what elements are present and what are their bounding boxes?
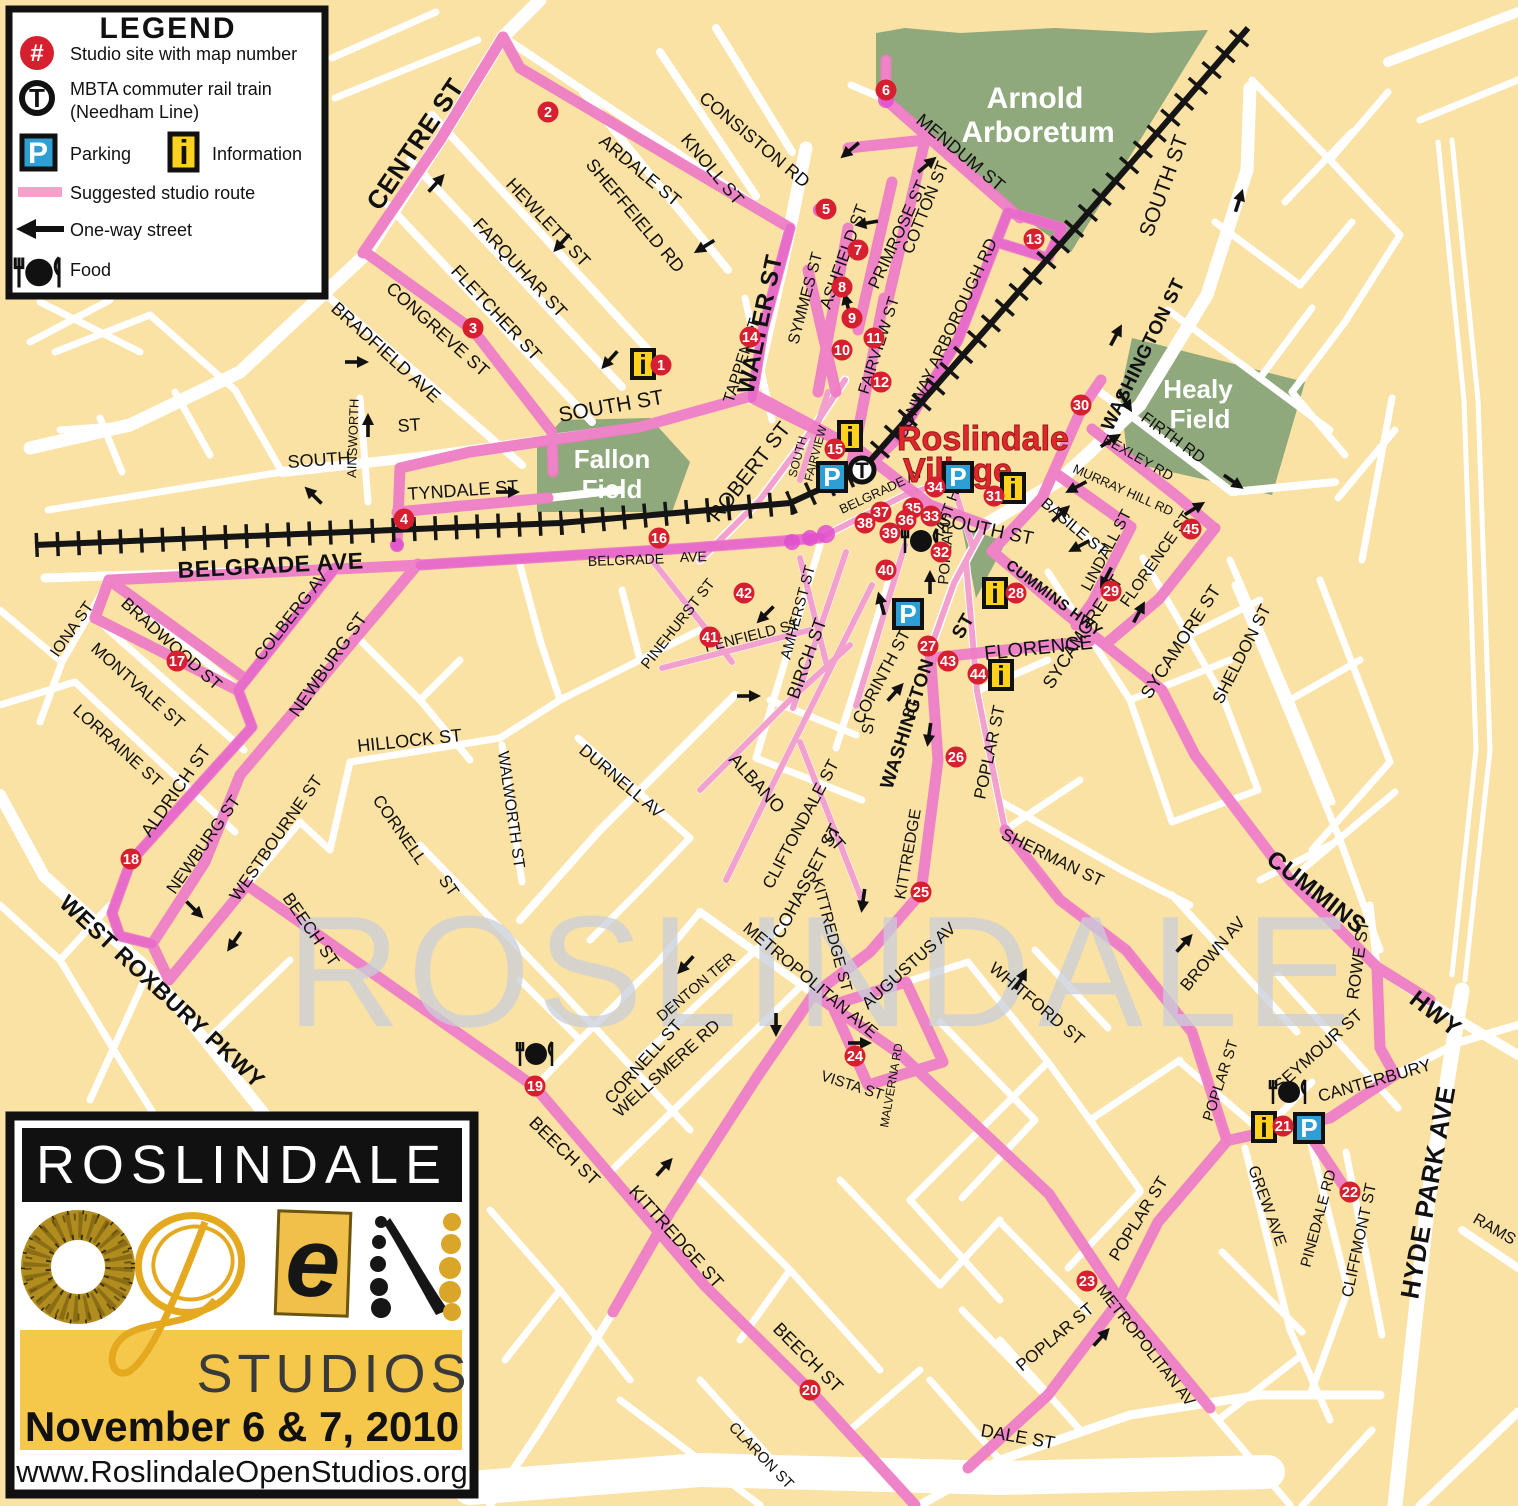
svg-text:33: 33 [923,509,939,525]
svg-text:Healy: Healy [1163,374,1233,404]
svg-text:10: 10 [834,343,850,359]
svg-text:BELGRADE: BELGRADE [588,550,665,569]
svg-text:21: 21 [1275,1119,1291,1135]
svg-text:28: 28 [1008,586,1024,602]
svg-text:www.RoslindaleOpenStudios.org: www.RoslindaleOpenStudios.org [15,1454,467,1489]
svg-text:41: 41 [702,630,718,646]
svg-text:Suggested studio route: Suggested studio route [70,183,255,203]
svg-text:19: 19 [527,1079,543,1095]
svg-text:Parking: Parking [70,144,131,164]
svg-text:40: 40 [878,563,894,579]
svg-text:45: 45 [1183,522,1199,538]
svg-text:34: 34 [927,480,943,496]
svg-text:11: 11 [866,331,881,347]
svg-text:32: 32 [933,545,949,561]
svg-text:43: 43 [940,654,956,670]
svg-text:Arboretum: Arboretum [961,116,1114,149]
svg-text:9: 9 [848,311,856,327]
svg-text:27: 27 [920,639,936,655]
svg-text:i: i [179,134,188,172]
svg-text:26: 26 [948,750,964,766]
svg-text:14: 14 [742,330,758,346]
svg-text:15: 15 [827,442,843,458]
svg-text:31: 31 [986,489,1002,505]
svg-text:12: 12 [873,375,889,391]
svg-text:Food: Food [70,260,111,280]
svg-text:AVE: AVE [680,548,708,565]
svg-text:3: 3 [469,321,477,337]
svg-text:e: e [284,1206,342,1318]
svg-text:17: 17 [169,654,185,670]
svg-text:Studio site with map number: Studio site with map number [70,44,297,64]
svg-text:One-way street: One-way street [70,220,192,240]
svg-text:38: 38 [857,516,873,532]
svg-text:LEGEND: LEGEND [99,12,236,45]
svg-text:November 6 & 7, 2010: November 6 & 7, 2010 [25,1403,459,1450]
svg-text:STUDIOS: STUDIOS [196,1344,471,1404]
svg-text:42: 42 [736,586,752,602]
svg-text:36: 36 [898,513,914,529]
svg-text:4: 4 [400,512,408,528]
svg-text:13: 13 [1026,232,1042,248]
svg-text:24: 24 [847,1049,863,1065]
svg-text:18: 18 [123,852,139,868]
svg-text:37: 37 [873,505,889,521]
svg-text:8: 8 [838,280,846,296]
svg-text:T: T [29,83,45,113]
svg-text:ROSLINDALE: ROSLINDALE [36,1135,448,1195]
svg-text:25: 25 [913,885,929,901]
svg-text:P: P [28,137,48,170]
svg-text:20: 20 [802,1383,818,1399]
svg-text:7: 7 [854,243,862,259]
svg-text:1: 1 [657,358,665,374]
svg-text:AINSWORTH: AINSWORTH [344,398,362,478]
svg-text:5: 5 [822,202,830,218]
svg-text:39: 39 [882,526,898,542]
svg-text:#: # [30,40,43,67]
svg-text:6: 6 [882,83,890,99]
svg-text:Fallon: Fallon [574,444,651,474]
svg-text:23: 23 [1079,1274,1095,1290]
svg-text:2: 2 [544,105,552,121]
svg-text:22: 22 [1342,1185,1358,1201]
svg-text:(Needham Line): (Needham Line) [70,102,199,122]
svg-text:29: 29 [1103,584,1119,600]
svg-text:Field: Field [582,474,643,504]
svg-text:44: 44 [970,667,986,683]
svg-text:MBTA commuter rail train: MBTA commuter rail train [70,79,272,99]
svg-text:30: 30 [1073,398,1089,414]
svg-text:Information: Information [212,144,302,164]
svg-text:16: 16 [651,531,667,547]
svg-text:Arnold: Arnold [987,82,1084,115]
svg-text:Field: Field [1170,404,1231,434]
svg-text:ST: ST [397,414,421,436]
